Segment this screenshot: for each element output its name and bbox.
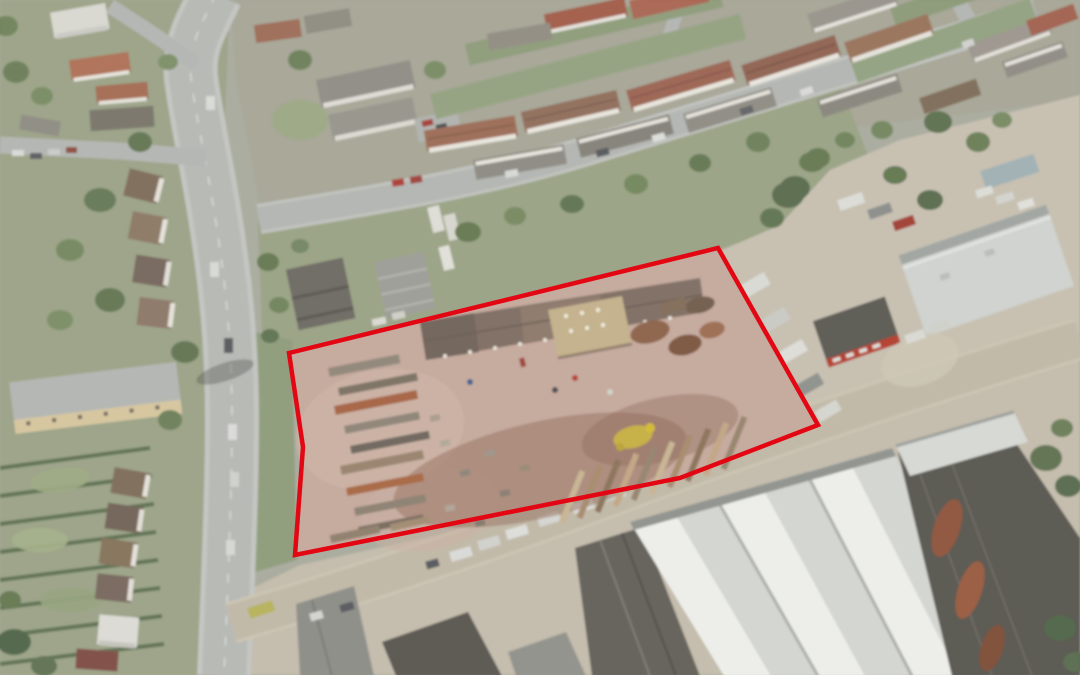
aerial-photograph: Oblique aerial photograph of an industri… [0, 0, 1080, 675]
aerial-photo-frame: Oblique aerial photograph of an industri… [0, 0, 1080, 675]
haze-overlay [0, 0, 1080, 675]
photo-content [0, 0, 1080, 675]
